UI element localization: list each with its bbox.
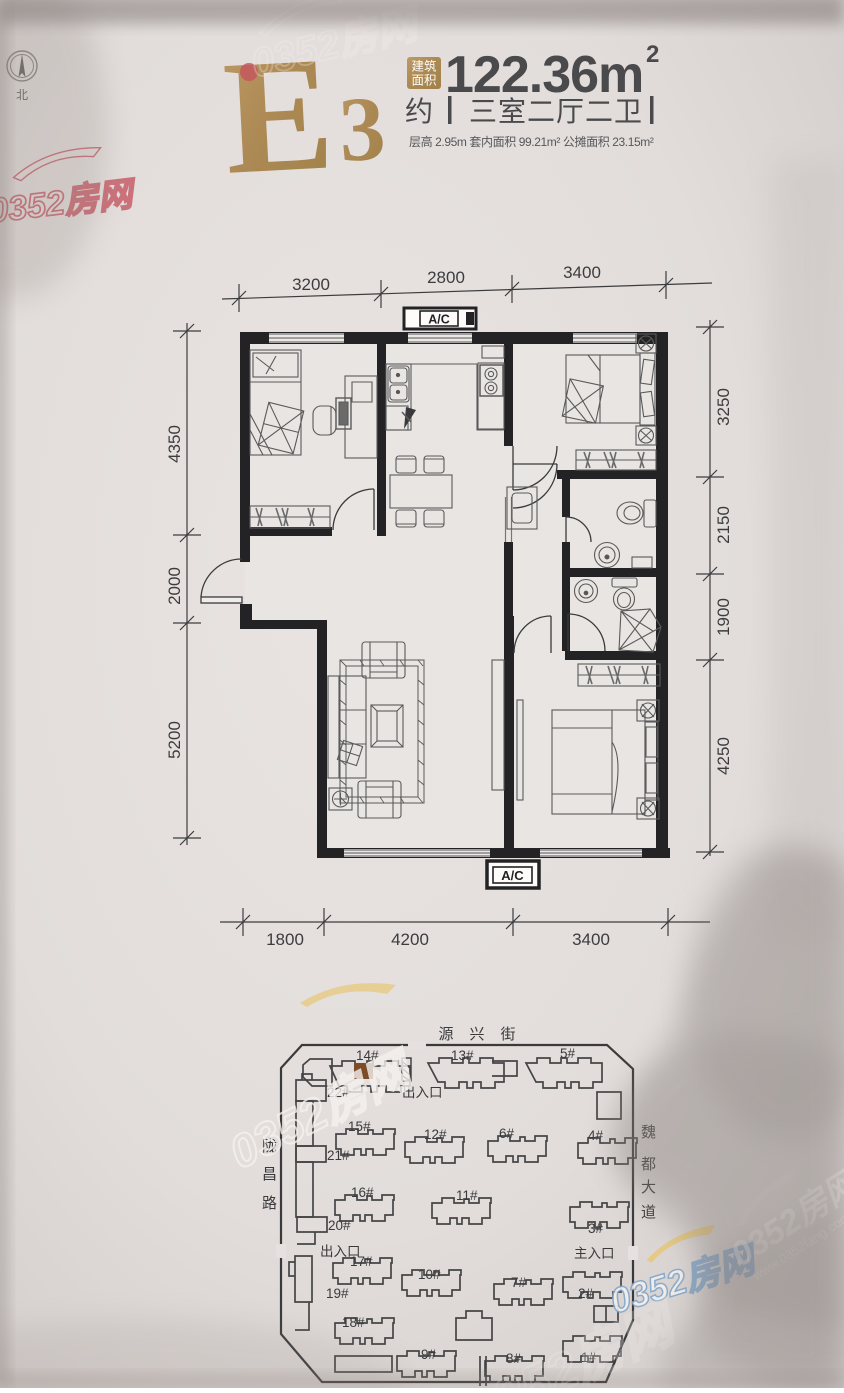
svg-text:源兴街: 源兴街 bbox=[438, 1026, 531, 1043]
svg-text:层高 2.95m 套内面积 99.21m² 公摊面积 23.: 层高 2.95m 套内面积 99.21m² 公摊面积 23.15m² bbox=[409, 134, 654, 149]
svg-text:21#: 21# bbox=[327, 1148, 350, 1163]
svg-text:3200: 3200 bbox=[292, 275, 330, 294]
svg-text:5#: 5# bbox=[560, 1046, 576, 1061]
svg-text:出入口: 出入口 bbox=[320, 1244, 361, 1259]
svg-text:18#: 18# bbox=[342, 1315, 365, 1330]
svg-text:3: 3 bbox=[336, 77, 387, 181]
svg-text:A/C: A/C bbox=[501, 868, 524, 883]
svg-text:2000: 2000 bbox=[165, 567, 184, 605]
svg-text:10#: 10# bbox=[418, 1267, 441, 1282]
svg-text:3#: 3# bbox=[588, 1221, 604, 1236]
svg-text:4#: 4# bbox=[588, 1128, 604, 1143]
svg-text:2800: 2800 bbox=[427, 268, 465, 287]
svg-text:A/C: A/C bbox=[428, 313, 450, 327]
svg-text:1900: 1900 bbox=[714, 598, 733, 636]
svg-text:建筑: 建筑 bbox=[411, 59, 437, 74]
svg-text:2150: 2150 bbox=[714, 506, 733, 544]
svg-text:2#: 2# bbox=[578, 1286, 594, 1301]
svg-text:12#: 12# bbox=[424, 1127, 447, 1142]
svg-text:9#: 9# bbox=[421, 1347, 437, 1362]
svg-text:三室二厅二卫: 三室二厅二卫 bbox=[469, 96, 643, 127]
svg-text:5200: 5200 bbox=[165, 721, 184, 759]
svg-text:3400: 3400 bbox=[572, 930, 610, 949]
svg-text:面积: 面积 bbox=[411, 74, 436, 88]
svg-text:1800: 1800 bbox=[266, 930, 304, 949]
svg-text:4200: 4200 bbox=[391, 930, 429, 949]
svg-text:13#: 13# bbox=[451, 1048, 474, 1063]
svg-text:4350: 4350 bbox=[165, 425, 184, 463]
svg-text:3400: 3400 bbox=[563, 263, 601, 282]
svg-text:路: 路 bbox=[262, 1195, 277, 1212]
svg-text:3250: 3250 bbox=[714, 388, 733, 426]
svg-text:11#: 11# bbox=[456, 1188, 478, 1203]
svg-text:20#: 20# bbox=[328, 1218, 351, 1233]
svg-text:19#: 19# bbox=[326, 1286, 349, 1301]
svg-text:2: 2 bbox=[646, 41, 659, 68]
svg-text:约: 约 bbox=[405, 96, 433, 127]
svg-text:6#: 6# bbox=[499, 1126, 515, 1141]
svg-text:主入口: 主入口 bbox=[574, 1246, 615, 1261]
svg-text:16#: 16# bbox=[351, 1185, 374, 1200]
svg-text:4250: 4250 bbox=[714, 737, 733, 775]
svg-text:7#: 7# bbox=[511, 1275, 527, 1290]
